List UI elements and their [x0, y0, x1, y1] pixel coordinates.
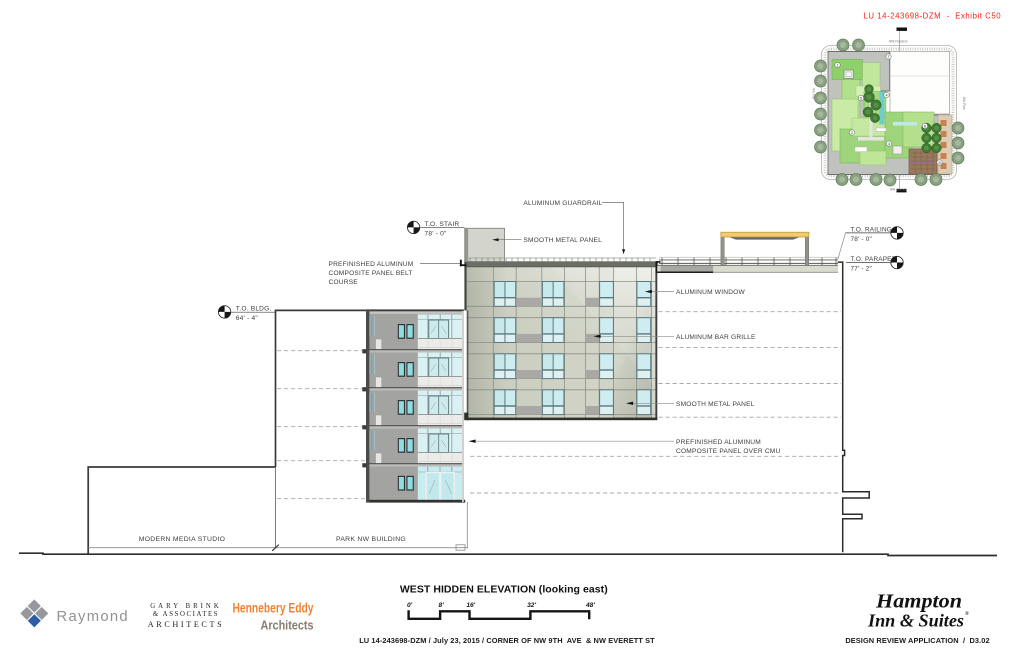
svg-text:NW Everett: NW Everett [890, 188, 906, 192]
svg-text:ALUMINUM WINDOW: ALUMINUM WINDOW [676, 289, 746, 296]
svg-text:6: 6 [924, 124, 926, 128]
svg-text:8: 8 [938, 161, 940, 165]
svg-text:2: 2 [851, 131, 853, 135]
svg-text:NW Flanders: NW Flanders [889, 40, 908, 44]
svg-text:Raymond: Raymond [57, 609, 129, 625]
svg-text:5: 5 [860, 96, 862, 100]
svg-text:SMOOTH METAL PANEL: SMOOTH METAL PANEL [676, 401, 755, 408]
svg-text:NW Park: NW Park [962, 97, 966, 110]
svg-text:& ASSOCIATES: & ASSOCIATES [153, 611, 219, 618]
svg-text:GARY BRINK: GARY BRINK [150, 603, 221, 610]
svg-text:77' - 2": 77' - 2" [851, 265, 872, 272]
svg-text:Architects: Architects [261, 618, 314, 633]
svg-text:T.O. STAIR: T.O. STAIR [425, 221, 460, 228]
svg-text:SMOOTH METAL PANEL: SMOOTH METAL PANEL [523, 237, 602, 244]
svg-text:0': 0' [407, 602, 413, 609]
svg-text:8': 8' [438, 602, 444, 609]
svg-text:32': 32' [527, 602, 536, 609]
svg-text:MODERN MEDIA STUDIO: MODERN MEDIA STUDIO [139, 536, 226, 543]
svg-text:Hampton: Hampton [875, 592, 962, 613]
svg-text:T.O. BLDG.: T.O. BLDG. [236, 306, 272, 313]
svg-text:78' - 0": 78' - 0" [851, 236, 872, 243]
svg-text:Inn & Suites: Inn & Suites [867, 611, 964, 631]
svg-text:ALUMINUM GUARDRAIL: ALUMINUM GUARDRAIL [523, 200, 602, 207]
svg-text:PREFINISHED ALUMINUM: PREFINISHED ALUMINUM [329, 261, 414, 268]
svg-text:LU 14-243698-DZM - Exhibit C: LU 14-243698-DZM - Exhibit C50 [864, 12, 1002, 21]
svg-text:78' - 0": 78' - 0" [425, 230, 448, 237]
svg-text:®: ® [965, 611, 969, 617]
svg-text:1: 1 [836, 63, 838, 67]
svg-text:16': 16' [466, 602, 475, 609]
svg-text:COMPOSITE PANEL OVER CMU: COMPOSITE PANEL OVER CMU [676, 448, 780, 455]
svg-text:ALUMINUM BAR GRILLE: ALUMINUM BAR GRILLE [676, 334, 756, 341]
svg-text:COURSE: COURSE [329, 279, 359, 286]
svg-text:NW 9th: NW 9th [812, 88, 816, 99]
svg-text:64' - 4": 64' - 4" [236, 315, 259, 322]
svg-text:PARK NW BUILDING: PARK NW BUILDING [336, 536, 406, 543]
svg-text:3: 3 [888, 142, 890, 146]
svg-text:4: 4 [885, 93, 887, 97]
svg-text:LU 14-243698-DZM / July 23, 20: LU 14-243698-DZM / July 23, 2015 / CORNE… [359, 636, 655, 645]
svg-text:DESIGN REVIEW APPLICATION /: DESIGN REVIEW APPLICATION / D3.02 [845, 636, 989, 645]
svg-text:7: 7 [887, 55, 889, 59]
svg-text:COMPOSITE PANEL BELT: COMPOSITE PANEL BELT [329, 270, 413, 277]
svg-text:PREFINISHED ALUMINUM: PREFINISHED ALUMINUM [676, 439, 761, 446]
svg-text:48': 48' [585, 602, 595, 609]
svg-text:WEST HIDDEN ELEVATION (looking: WEST HIDDEN ELEVATION (looking east) [400, 584, 608, 596]
svg-text:ARCHITECTS: ARCHITECTS [148, 620, 225, 629]
svg-text:Hennebery Eddy: Hennebery Eddy [233, 601, 314, 616]
